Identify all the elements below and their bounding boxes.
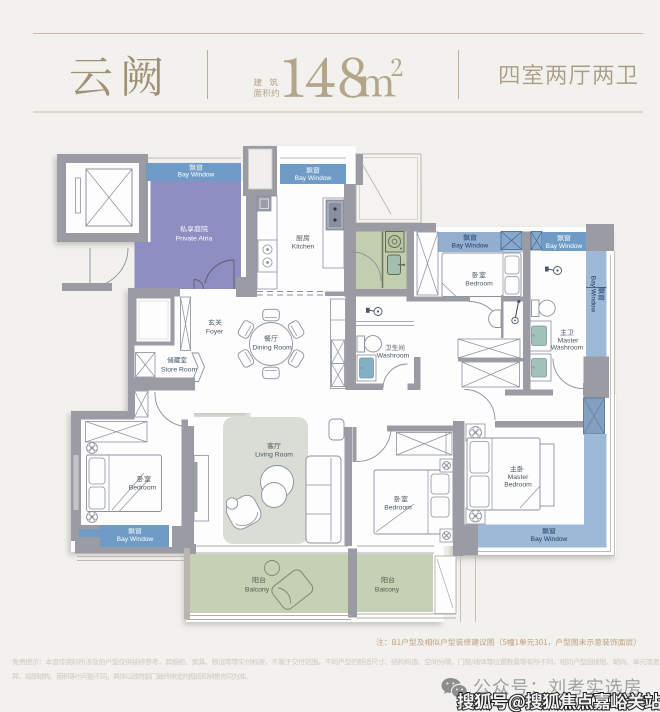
svg-text:Bay Window: Bay Window xyxy=(117,536,154,543)
svg-text:Washroom: Washroom xyxy=(551,345,584,352)
svg-text:Bay Window: Bay Window xyxy=(295,175,332,182)
svg-text:Private Atria: Private Atria xyxy=(176,236,213,243)
svg-text:Kitchen: Kitchen xyxy=(292,244,315,251)
svg-text:Bay Window: Bay Window xyxy=(531,536,568,543)
svg-text:Master: Master xyxy=(558,338,580,345)
svg-text:Master: Master xyxy=(508,474,530,481)
svg-text:Living Room: Living Room xyxy=(255,452,293,459)
svg-text:Foyer: Foyer xyxy=(206,329,224,336)
svg-text:Dining Room: Dining Room xyxy=(252,345,292,352)
svg-text:Bay Window: Bay Window xyxy=(546,243,583,250)
svg-text:Bedroom: Bedroom xyxy=(504,482,532,489)
svg-text:Bedroom: Bedroom xyxy=(384,505,412,512)
svg-text:Bay Window: Bay Window xyxy=(178,172,215,179)
svg-text:Store Room: Store Room xyxy=(161,367,198,374)
svg-text:Bay Window: Bay Window xyxy=(590,276,597,313)
svg-text:Bay Window: Bay Window xyxy=(452,242,489,249)
svg-text:Balcony: Balcony xyxy=(245,587,270,594)
svg-text:Bedroom: Bedroom xyxy=(129,485,157,492)
svg-text:Washroom: Washroom xyxy=(377,353,410,360)
svg-text:Balcony: Balcony xyxy=(375,587,400,594)
svg-text:Bedroom: Bedroom xyxy=(465,281,493,288)
